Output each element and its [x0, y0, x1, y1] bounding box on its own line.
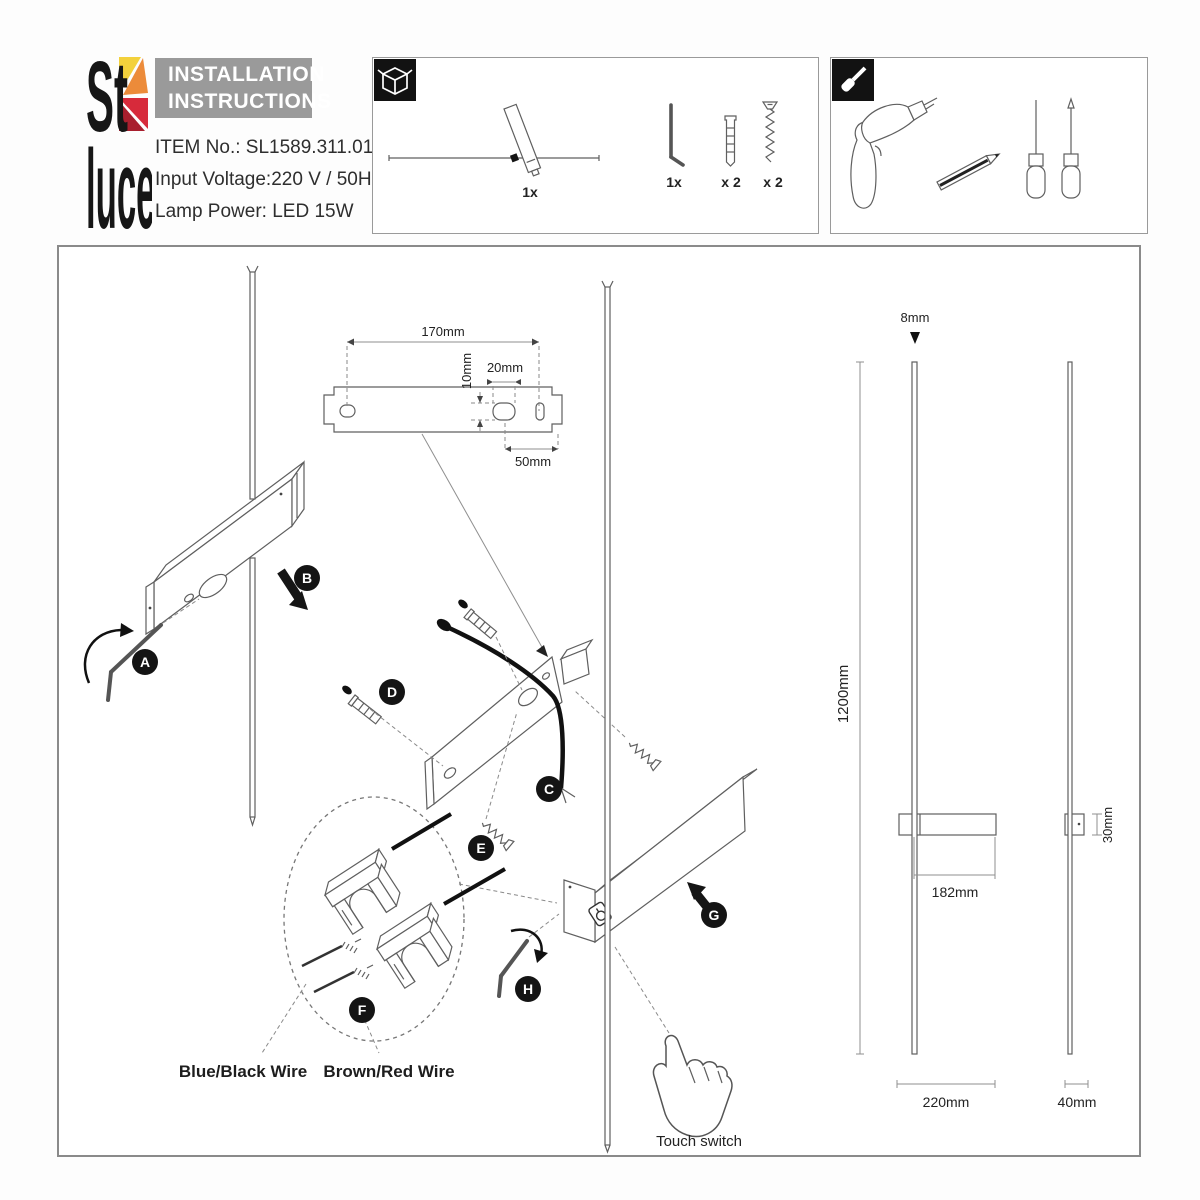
- plate-end-offset-label: 50mm: [515, 454, 551, 469]
- pencil-illustration: [937, 150, 1001, 190]
- screwdriver-icon: [832, 59, 874, 101]
- wall-bracket-isometric: [425, 640, 592, 809]
- stripped-lead-1: [302, 939, 361, 966]
- flat-screwdriver-illustration: [1027, 100, 1045, 198]
- screw-illustration: [763, 102, 777, 162]
- wire-connector-2: [372, 903, 462, 989]
- item-number: ITEM No.: SL1589.311.01: [155, 132, 385, 164]
- stluce-logo: St luce: [72, 52, 152, 232]
- tools-required-box: [830, 57, 1148, 234]
- stripped-lead-2: [314, 965, 373, 992]
- drill-illustration: [851, 98, 937, 208]
- input-voltage: Input Voltage:220 V / 50Hz: [155, 164, 385, 196]
- neutral-wire-label: Blue/Black Wire: [179, 1062, 307, 1081]
- lamp-rod-right: [602, 281, 613, 1152]
- rod-diameter-label: 8mm: [901, 310, 930, 325]
- touch-switch-label: Touch switch: [656, 1133, 742, 1150]
- body-width-label: 220mm: [923, 1094, 970, 1110]
- wire-label-leader-1: [262, 984, 306, 1053]
- hex-key-qty: 1x: [666, 174, 682, 190]
- dimension-30mm: 30mm: [1092, 807, 1115, 843]
- step-marker-h: H: [515, 976, 541, 1002]
- package-contents-drawing: 1x 1x x 2 x 2: [373, 58, 818, 233]
- product-info: ITEM No.: SL1589.311.01 Input Voltage:22…: [155, 132, 385, 228]
- live-wire-label: Brown/Red Wire: [323, 1062, 454, 1081]
- screw-right-guide: [575, 691, 625, 737]
- connector-wire-2: [444, 869, 505, 904]
- plate-width-label: 170mm: [421, 324, 464, 339]
- plate-slot-height-label: 10mm: [459, 353, 474, 389]
- wall-plug-upper: [457, 598, 522, 690]
- lamp-body-exploded: [146, 462, 304, 634]
- svg-text:D: D: [387, 684, 397, 700]
- wire-connector-1: [320, 849, 410, 935]
- screw-qty: x 2: [763, 174, 783, 190]
- svg-text:C: C: [544, 781, 554, 797]
- connector-wire-1: [392, 814, 451, 849]
- dimension-40mm: 40mm: [1058, 1080, 1097, 1110]
- lamp-body-mounted: [564, 769, 757, 942]
- svg-text:B: B: [302, 570, 312, 586]
- dimension-182mm: 182mm: [914, 837, 995, 900]
- lamp-power: Lamp Power: LED 15W: [155, 196, 385, 228]
- dimension-220mm: 220mm: [897, 1080, 995, 1110]
- mounting-plate-top-view: [324, 387, 562, 432]
- touch-switch-hand: [615, 947, 732, 1136]
- plate-slot-width-label: 20mm: [487, 360, 523, 375]
- step-marker-e: E: [468, 835, 494, 861]
- step-marker-c: C: [536, 776, 562, 802]
- side-view: [1065, 362, 1084, 1054]
- step-marker-f: F: [349, 997, 375, 1023]
- lamp-illustration: [389, 104, 599, 177]
- svg-text:A: A: [140, 654, 150, 670]
- dimension-1200mm: 1200mm: [835, 362, 864, 1054]
- phillips-screwdriver-illustration: [1062, 99, 1080, 198]
- title-line-1: INSTALLATION: [168, 61, 312, 88]
- length-label: 1200mm: [835, 665, 852, 723]
- step-marker-g: G: [701, 902, 727, 928]
- step-marker-d: D: [379, 679, 405, 705]
- step-marker-a: A: [132, 649, 158, 675]
- step-marker-b: B: [294, 565, 320, 591]
- depth-label: 30mm: [1100, 807, 1115, 843]
- installation-diagram-panel: 170mm 10mm 20mm 50mm: [57, 245, 1141, 1157]
- tools-drawing: [831, 58, 1147, 233]
- hex-key-illustration: [671, 105, 683, 165]
- logo-text-bottom: luce: [86, 127, 152, 232]
- installation-diagram: 170mm 10mm 20mm 50mm: [59, 247, 1139, 1155]
- svg-text:G: G: [709, 907, 720, 923]
- svg-text:F: F: [358, 1002, 367, 1018]
- svg-text:H: H: [523, 981, 533, 997]
- package-icon: [374, 59, 416, 101]
- svg-text:E: E: [476, 840, 485, 856]
- side-width-label: 40mm: [1058, 1094, 1097, 1110]
- diameter-pointer: [910, 332, 920, 344]
- installation-instructions-title: INSTALLATION INSTRUCTIONS: [155, 58, 312, 118]
- wall-plug-qty: x 2: [721, 174, 741, 190]
- wall-plug-illustration: [725, 116, 736, 166]
- package-contents-box: 1x 1x x 2 x 2: [372, 57, 819, 234]
- front-view: 8mm: [899, 310, 996, 1054]
- lamp-qty: 1x: [522, 184, 538, 200]
- title-line-2: INSTRUCTIONS: [168, 88, 312, 115]
- screw-right: [626, 738, 661, 770]
- bracket-offset-label: 182mm: [932, 884, 979, 900]
